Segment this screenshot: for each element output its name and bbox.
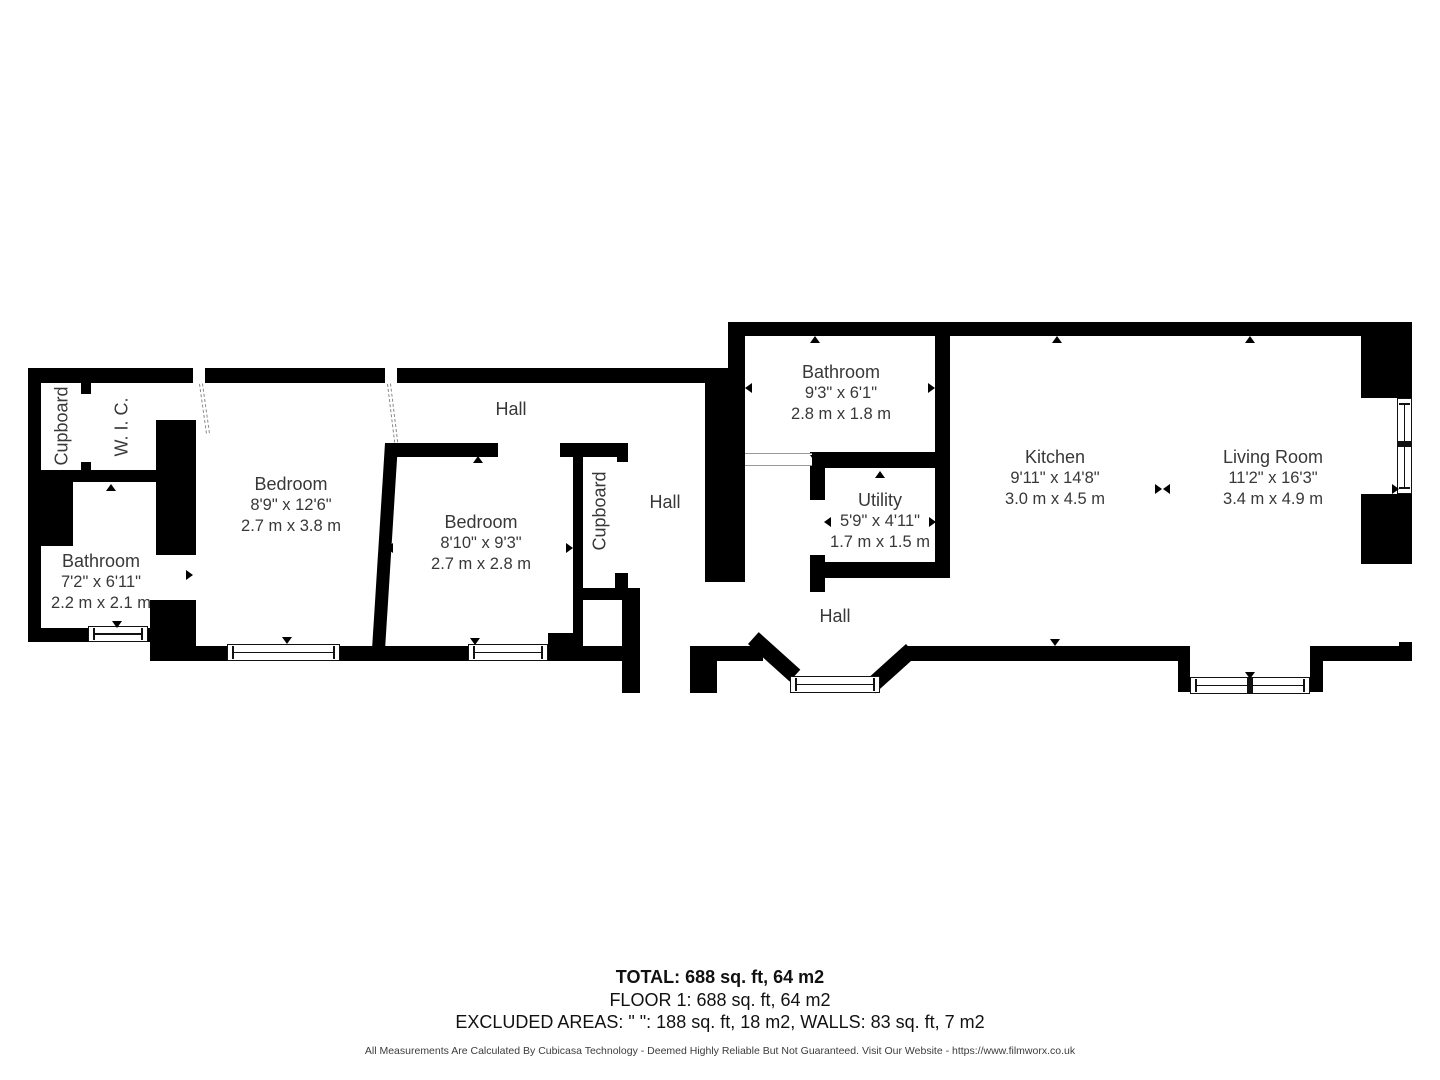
wall-segment	[28, 368, 41, 642]
room-dim-ft: 9'11" x 14'8"	[1005, 468, 1105, 489]
wall-segment	[156, 420, 196, 555]
measure-arrow	[1245, 672, 1255, 679]
wall-segment	[1310, 646, 1323, 692]
room-name: Hall	[495, 399, 526, 420]
wall-segment	[728, 322, 1412, 336]
wall-segment	[690, 646, 717, 693]
wall-segment	[155, 646, 227, 661]
window	[88, 626, 148, 642]
room-dim-ft: 11'2" x 16'3"	[1223, 468, 1323, 489]
wall-segment	[81, 383, 91, 394]
measure-arrow	[566, 543, 573, 553]
room-dim-m: 3.4 m x 4.9 m	[1223, 489, 1323, 510]
measure-arrow	[31, 570, 38, 580]
room-label-utility: Utility 5'9" x 4'11" 1.7 m x 1.5 m	[830, 490, 930, 553]
wall-segment	[1361, 336, 1412, 398]
wall-segment	[935, 468, 950, 578]
measure-arrow	[928, 383, 935, 393]
door-swing	[387, 384, 398, 443]
measure-arrow	[1050, 639, 1060, 646]
room-label-living-room: Living Room 11'2" x 16'3" 3.4 m x 4.9 m	[1223, 447, 1323, 510]
window	[790, 676, 880, 693]
measure-arrow	[810, 455, 820, 462]
wall-segment	[705, 383, 745, 582]
window	[1397, 398, 1412, 494]
measure-arrow	[1155, 484, 1162, 494]
measure-arrow	[810, 336, 820, 343]
room-label-cupboard-left: Cupboard	[52, 386, 73, 465]
wall-segment	[622, 600, 640, 693]
room-name: Kitchen	[1005, 447, 1105, 468]
measure-arrow	[875, 471, 885, 478]
wall-segment	[28, 368, 193, 383]
measure-arrow	[282, 637, 292, 644]
measure-arrow	[1163, 484, 1170, 494]
floor-plan-page: Cupboard W. I. C. Cupboard Bathroom 7'2"…	[0, 0, 1440, 1080]
measure-arrow	[875, 566, 885, 573]
door-swing	[199, 383, 210, 433]
room-name: Hall	[819, 606, 850, 627]
disclaimer-text: All Measurements Are Calculated By Cubic…	[0, 1045, 1440, 1057]
wall-segment	[812, 452, 950, 468]
window	[227, 644, 340, 661]
room-dim-m: 2.7 m x 3.8 m	[241, 516, 341, 537]
wall-segment	[28, 470, 156, 482]
wall-segment	[397, 368, 740, 383]
wall-segment	[205, 368, 385, 383]
room-label-hall-right: Hall	[819, 606, 850, 627]
wall-segment	[1178, 646, 1190, 692]
room-label-hall-mid: Hall	[649, 492, 680, 513]
room-name: Living Room	[1223, 447, 1323, 468]
measure-arrow	[106, 484, 116, 491]
room-dim-m: 2.2 m x 2.1 m	[51, 593, 151, 614]
room-label-hall-top: Hall	[495, 399, 526, 420]
wall-segment	[573, 445, 583, 648]
room-label-kitchen: Kitchen 9'11" x 14'8" 3.0 m x 4.5 m	[1005, 447, 1105, 510]
room-dim-ft: 7'2" x 6'11"	[51, 572, 151, 593]
room-dim-ft: 8'9" x 12'6"	[241, 495, 341, 516]
wall-segment	[548, 633, 583, 646]
room-dim-m: 1.7 m x 1.5 m	[830, 532, 930, 553]
room-dim-m: 3.0 m x 4.5 m	[1005, 489, 1105, 510]
measure-arrow	[473, 456, 483, 463]
room-name: Hall	[649, 492, 680, 513]
wall-segment	[41, 482, 73, 546]
room-label-wic: W. I. C.	[112, 397, 133, 456]
room-dim-ft: 5'9" x 4'11"	[830, 511, 930, 532]
measure-arrow	[386, 543, 393, 553]
wall-segment	[617, 445, 628, 462]
summary-floor: FLOOR 1: 688 sq. ft, 64 m2	[0, 989, 1440, 1011]
measure-arrow	[1245, 336, 1255, 343]
measure-arrow	[470, 638, 480, 645]
wall-segment	[340, 646, 468, 661]
room-label-bedroom-2: Bedroom 8'10" x 9'3" 2.7 m x 2.8 m	[431, 512, 531, 575]
room-name: Bathroom	[791, 362, 891, 383]
wall-segment	[28, 628, 88, 642]
measure-arrow	[824, 517, 831, 527]
door-threshold	[745, 453, 812, 466]
measure-arrow	[186, 570, 193, 580]
wall-segment	[935, 322, 950, 468]
window	[468, 644, 548, 661]
room-label-cupboard-2: Cupboard	[590, 471, 611, 550]
wall-segment-diagonal	[372, 443, 398, 651]
room-name: Utility	[830, 490, 930, 511]
room-name: Bathroom	[51, 551, 151, 572]
summary-total: TOTAL: 688 sq. ft, 64 m2	[0, 966, 1440, 988]
window-mullion	[1247, 678, 1253, 693]
wall-segment	[907, 646, 1178, 661]
room-name: Bedroom	[431, 512, 531, 533]
wall-segment	[148, 628, 160, 642]
summary-excluded-areas: EXCLUDED AREAS: " ": 188 sq. ft, 18 m2, …	[0, 1011, 1440, 1033]
room-label-bathroom-left: Bathroom 7'2" x 6'11" 2.2 m x 2.1 m	[51, 551, 151, 614]
measure-arrow	[745, 383, 752, 393]
wall-segment	[385, 443, 498, 457]
wall-segment	[1361, 494, 1412, 564]
room-name: Bedroom	[241, 474, 341, 495]
measure-arrow	[280, 368, 290, 375]
measure-arrow	[1052, 336, 1062, 343]
measure-arrow	[112, 621, 122, 628]
room-dim-m: 2.8 m x 1.8 m	[791, 404, 891, 425]
measure-arrow	[929, 517, 936, 527]
wall-segment	[1323, 646, 1412, 661]
room-dim-ft: 9'3" x 6'1"	[791, 383, 891, 404]
floor-plan-canvas: Cupboard W. I. C. Cupboard Bathroom 7'2"…	[0, 0, 1440, 1080]
window	[1190, 677, 1310, 694]
room-label-bathroom-right: Bathroom 9'3" x 6'1" 2.8 m x 1.8 m	[791, 362, 891, 425]
wall-segment	[583, 588, 640, 600]
room-dim-m: 2.7 m x 2.8 m	[431, 554, 531, 575]
room-dim-ft: 8'10" x 9'3"	[431, 533, 531, 554]
room-label-bedroom-1: Bedroom 8'9" x 12'6" 2.7 m x 3.8 m	[241, 474, 341, 537]
measure-arrow	[1392, 484, 1399, 494]
